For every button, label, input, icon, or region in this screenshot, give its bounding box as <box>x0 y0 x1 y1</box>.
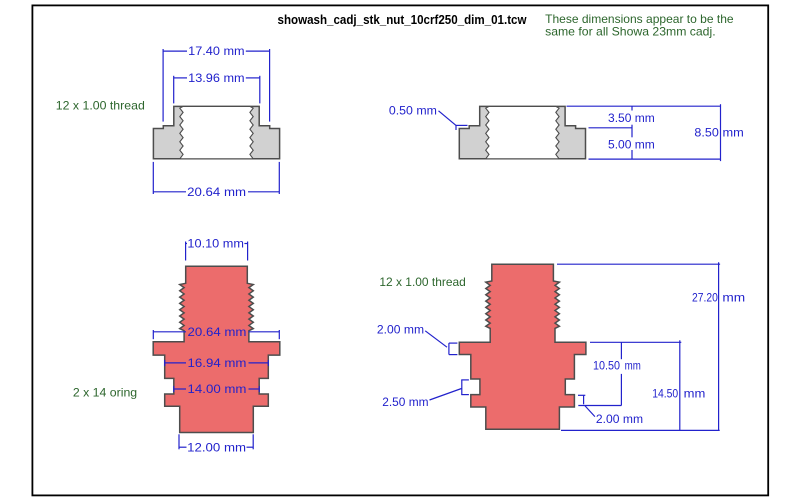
svg-text:17.40 mm: 17.40 mm <box>188 44 245 58</box>
svg-text:16.94 mm: 16.94 mm <box>188 356 247 370</box>
svg-text:showash_cadj_stk_nut_10crf250_: showash_cadj_stk_nut_10crf250_dim_01.tcw <box>278 13 527 27</box>
svg-text:10.10 mm: 10.10 mm <box>187 237 244 251</box>
svg-text:2.50 mm: 2.50 mm <box>382 395 428 409</box>
svg-text:mm: mm <box>722 290 745 304</box>
svg-text:13.96 mm: 13.96 mm <box>188 71 245 85</box>
svg-text:14.50: 14.50 <box>652 387 678 401</box>
svg-text:10.50: 10.50 <box>593 359 620 373</box>
svg-text:3.50 mm: 3.50 mm <box>608 111 655 125</box>
svg-text:27.20: 27.20 <box>692 290 718 304</box>
svg-text:mm: mm <box>625 359 641 373</box>
svg-text:0.50 mm: 0.50 mm <box>389 104 437 118</box>
svg-text:14.00 mm: 14.00 mm <box>188 382 247 396</box>
svg-text:12 x 1.00 thread: 12 x 1.00 thread <box>379 275 466 289</box>
svg-text:same for all Showa 23mm cadj.: same for all Showa 23mm cadj. <box>545 25 716 39</box>
svg-text:2 x 14 oring: 2 x 14 oring <box>73 386 137 400</box>
svg-text:20.64 mm: 20.64 mm <box>188 325 247 339</box>
svg-text:8.50: 8.50 <box>694 125 719 139</box>
svg-text:12 x 1.00 thread: 12 x 1.00 thread <box>56 99 145 113</box>
svg-text:mm: mm <box>684 387 706 401</box>
svg-text:5.00 mm: 5.00 mm <box>608 138 655 152</box>
svg-text:2.00 mm: 2.00 mm <box>596 412 643 426</box>
svg-text:mm: mm <box>723 125 744 139</box>
svg-text:20.64 mm: 20.64 mm <box>187 185 246 199</box>
svg-text:12.00 mm: 12.00 mm <box>187 440 246 454</box>
svg-text:2.00 mm: 2.00 mm <box>377 323 424 337</box>
